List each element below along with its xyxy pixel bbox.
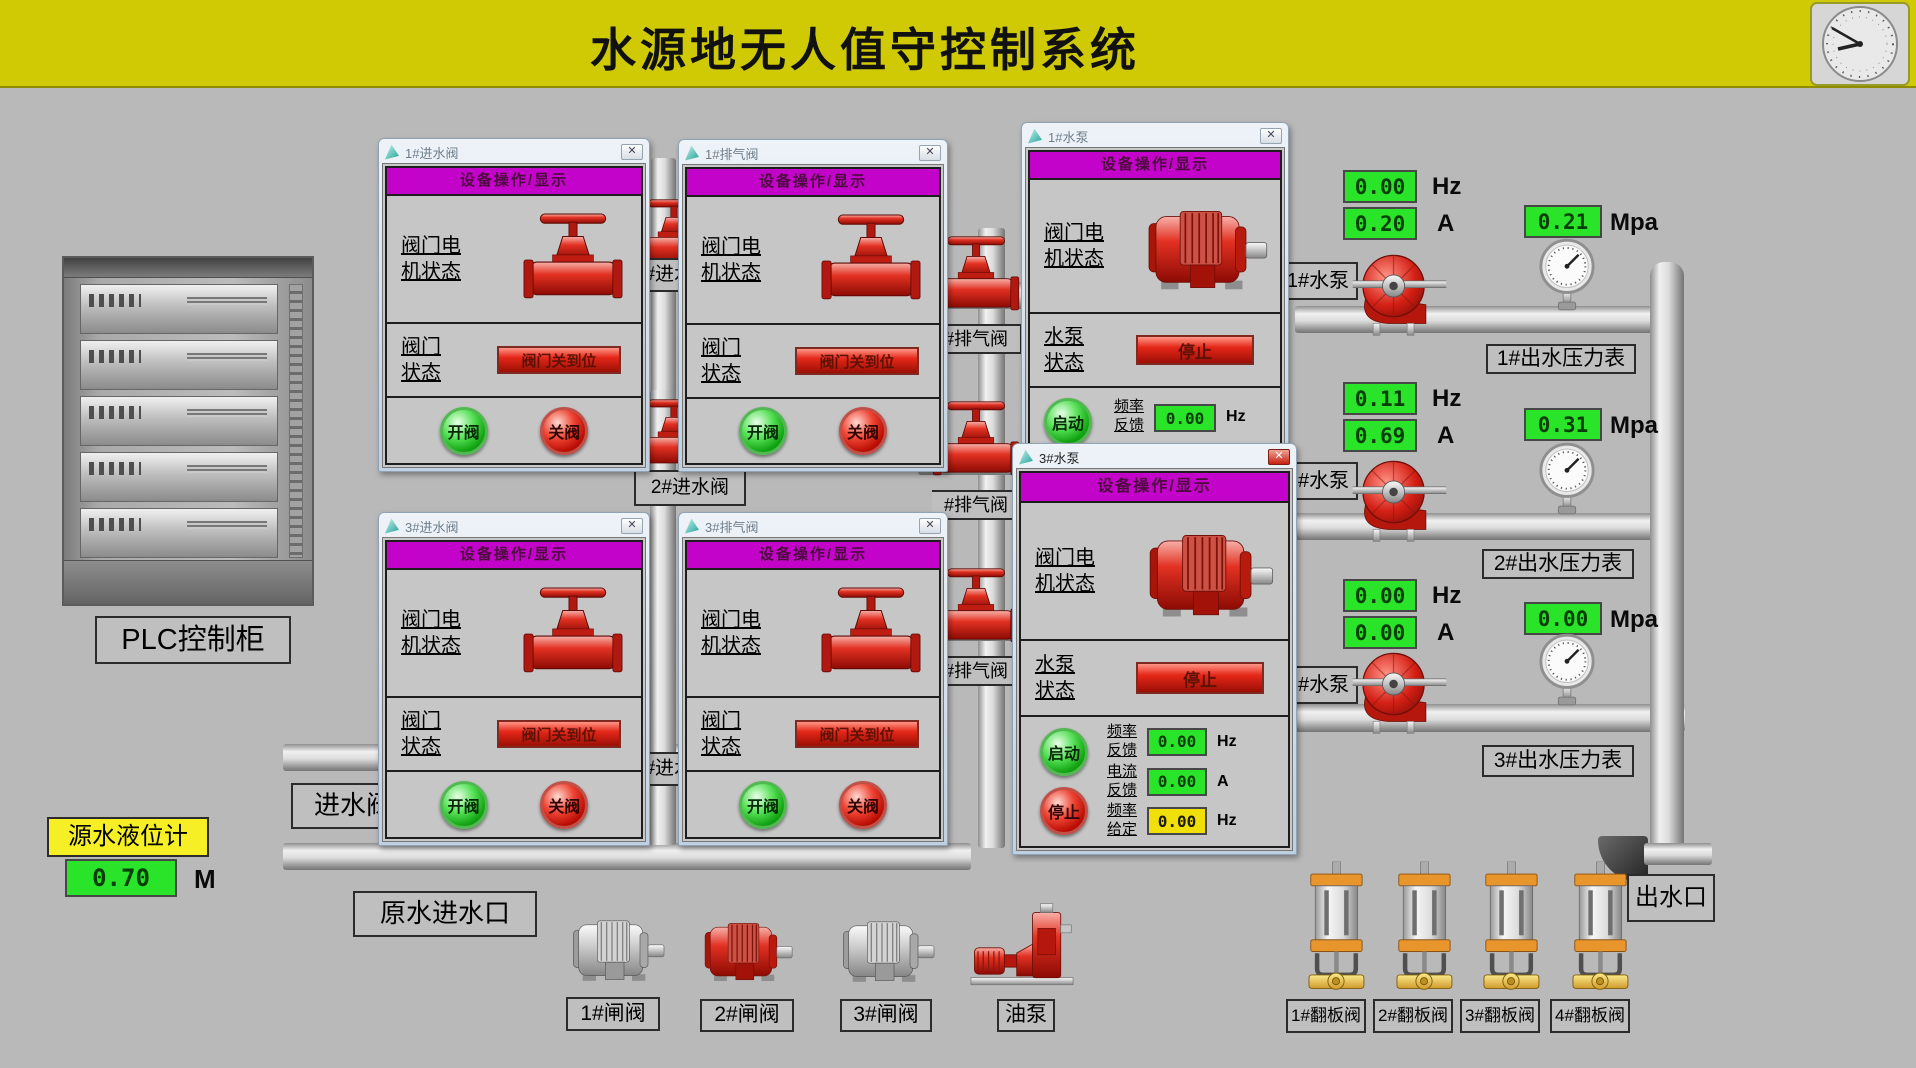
app-sail-icon [685,146,699,161]
device-ops-header: 设备操作/显示 [687,169,939,197]
plc-rack-unit [80,340,278,390]
pump-1-frequency-unit: Hz [1432,173,1461,201]
window-titlebar[interactable]: 3#水泵 ✕ [1016,446,1293,468]
window-title: 3#排气阀 [705,517,913,536]
valve-status-label: 阀门状态 [701,335,741,387]
window-titlebar[interactable]: 3#排气阀 ✕ [682,515,944,537]
pressure-gauge-1-label: 1#出水压力表 [1486,344,1636,374]
pump-2-frequency-unit: Hz [1432,385,1461,413]
pump-control-buttons: 启动 停止 [1021,717,1107,846]
valve-motor-status-label: 阀门电机状态 [701,234,761,286]
window-titlebar[interactable]: 1#进水阀 ✕ [382,141,646,163]
pressure-gauge-2-icon [1538,442,1596,518]
flap-valve-1-icon[interactable] [1300,860,1372,998]
gate-valve-1-label: 1#闸阀 [566,997,660,1031]
close-icon[interactable]: ✕ [919,518,941,534]
app-sail-icon [385,519,399,534]
current-feedback-display: 0.00 [1147,768,1207,796]
frequency-setpoint-display[interactable]: 0.00 [1147,807,1207,835]
window-inlet-valve-1: 1#进水阀 ✕ 设备操作/显示 阀门电机状态 阀门状态 阀门关到位 开阀 关阀 [378,138,650,472]
pressure-gauge-3-label: 3#出水压力表 [1482,745,1634,777]
pump-3-frequency-display: 0.00 [1343,579,1417,612]
pump-1-frequency-display: 0.00 [1343,170,1417,203]
close-icon[interactable]: ✕ [919,145,941,161]
valve-status-label: 阀门状态 [701,708,741,760]
plc-rack-unit [80,452,278,502]
frequency-feedback-label: 频率反馈 [1107,723,1137,761]
device-ops-header: 设备操作/显示 [1021,473,1288,503]
open-valve-button[interactable]: 开阀 [440,781,488,829]
window-exhaust-valve-1: 1#排气阀 ✕ 设备操作/显示 阀门电机状态 阀门状态 阀门关到位 开阀 关阀 [678,139,948,472]
frequency-feedback-display: 0.00 [1147,728,1207,756]
valve-status-label: 阀门状态 [401,334,441,386]
valve-motor-status-label: 阀门电机状态 [1035,545,1095,597]
title-banner: 水源地无人值守控制系统 [0,0,1916,88]
close-valve-button[interactable]: 关阀 [540,781,588,829]
open-valve-button[interactable]: 开阀 [739,407,787,455]
start-pump-button[interactable]: 启动 [1040,728,1088,776]
flap-valve-4-label: 4#翻板阀 [1550,999,1630,1033]
valve-status-value: 阀门关到位 [497,720,621,748]
pump-status-value: 停止 [1136,662,1264,694]
current-feedback-label: 电流反馈 [1107,763,1137,801]
plc-rack-unit [80,508,278,558]
window-exhaust-valve-3: 3#排气阀 ✕ 设备操作/显示 阀门电机状态 阀门状态 阀门关到位 开阀 关阀 [678,512,948,846]
pump-2-frequency-display: 0.11 [1343,382,1417,415]
gate-valve-icon [819,586,923,680]
gate-valve-motor-2-icon[interactable] [700,914,796,984]
pump-2-current-unit: A [1437,422,1454,450]
frequency-feedback-unit: Hz [1217,733,1237,751]
gate-valve-2-label: 2#闸阀 [700,999,794,1032]
window-inlet-valve-3: 3#进水阀 ✕ 设备操作/显示 阀门电机状态 阀门状态 阀门关到位 开阀 关阀 [378,512,650,846]
window-title: 3#水泵 [1039,448,1262,467]
pump-status-label: 水泵状态 [1035,652,1075,704]
pressure-2-display: 0.31 [1524,408,1602,441]
frequency-setpoint-unit: Hz [1217,812,1237,830]
device-ops-header: 设备操作/显示 [387,542,641,570]
window-titlebar[interactable]: 1#水泵 ✕ [1025,125,1285,147]
pressure-1-unit: Mpa [1610,209,1658,237]
pump-3-current-display: 0.00 [1343,616,1417,649]
gate-valve-motor-1-icon[interactable] [568,910,668,985]
outlet-header-pipe [1650,262,1684,852]
close-valve-button[interactable]: 关阀 [540,407,588,455]
flap-valve-1-label: 1#翻板阀 [1286,999,1366,1033]
source-level-unit: M [194,864,216,895]
plc-rack-units [80,284,278,558]
app-sail-icon [1019,450,1033,465]
window-title: 1#水泵 [1048,127,1254,146]
plc-cabinet-top [64,258,312,278]
source-level-label: 源水液位计 [47,817,209,857]
frequency-feedback-display: 0.00 [1154,404,1216,432]
valve-motor-status-label: 阀门电机状态 [401,607,461,659]
app-sail-icon [385,145,399,160]
gate-valve-icon [819,213,923,307]
analog-clock [1810,2,1910,86]
pump-1-current-display: 0.20 [1343,207,1417,240]
pump-2-current-display: 0.69 [1343,419,1417,452]
close-icon[interactable]: ✕ [1268,449,1290,465]
gate-valve-motor-3-icon[interactable] [838,912,938,985]
window-pump-3: 3#水泵 ✕ 设备操作/显示 阀门电机状态 水泵状态 停止 启动 停止 频率反馈 [1012,443,1297,855]
raw-water-inlet-label: 原水进水口 [353,891,537,937]
window-title: 1#排气阀 [705,144,913,163]
plc-cabinet-label: PLC控制柜 [95,616,291,664]
frequency-feedback-label: 频率反馈 [1114,398,1144,436]
pressure-gauge-2-label: 2#出水压力表 [1482,549,1634,579]
gate-valve-icon [521,586,625,680]
flap-valve-4-icon[interactable] [1564,860,1636,998]
pressure-1-display: 0.21 [1524,205,1602,238]
outlet-label: 出水口 [1627,874,1715,922]
valve-motor-status-label: 阀门电机状态 [701,607,761,659]
flap-valve-2-icon[interactable] [1388,860,1460,998]
pressure-3-unit: Mpa [1610,606,1658,634]
window-titlebar[interactable]: 3#进水阀 ✕ [382,515,646,537]
close-valve-button[interactable]: 关阀 [839,781,887,829]
pump-readout-rows: 频率反馈 0.00 Hz 电流反馈 0.00 A 频率给定 0.00 Hz [1107,717,1288,846]
oil-pump-icon[interactable] [968,902,1076,990]
plc-rack-unit [80,284,278,334]
open-valve-button[interactable]: 开阀 [739,781,787,829]
close-icon[interactable]: ✕ [621,518,643,534]
device-ops-header: 设备操作/显示 [1030,152,1280,180]
scada-main-screen: 水源地无人值守控制系统 PLC控制柜 [0,0,1916,1068]
plc-cabinet-graphic[interactable] [62,256,314,606]
oil-pump-label: 油泵 [997,999,1055,1032]
valve-status-value: 阀门关到位 [795,720,919,748]
pump-1-current-unit: A [1437,210,1454,238]
window-titlebar[interactable]: 1#排气阀 ✕ [682,142,944,164]
pressure-gauge-1-icon [1538,238,1596,314]
start-pump-button[interactable]: 启动 [1044,398,1092,446]
pump-status-label: 水泵状态 [1044,324,1084,376]
outlet-stub-pipe [1644,843,1712,865]
app-sail-icon [1028,129,1042,144]
valve-status-value: 阀门关到位 [497,346,621,374]
current-feedback-unit: A [1217,773,1229,791]
source-level-display: 0.70 [65,859,177,897]
valve-status-value: 阀门关到位 [795,347,919,375]
pressure-3-display: 0.00 [1524,602,1602,635]
open-valve-button[interactable]: 开阀 [440,407,488,455]
frequency-setpoint-label: 频率给定 [1107,802,1137,840]
gate-valve-icon [521,212,625,306]
pump-2-icon[interactable] [1352,458,1447,543]
app-sail-icon [685,519,699,534]
window-title: 3#进水阀 [405,517,615,536]
flap-valve-3-icon[interactable] [1475,860,1547,998]
raw-water-main-pipe [283,843,971,870]
pump-motor-icon [1143,524,1278,619]
manifold-pipe [978,228,1005,848]
pump-3-icon[interactable] [1352,650,1447,735]
pump-3-current-unit: A [1437,619,1454,647]
flap-valve-2-label: 2#翻板阀 [1373,999,1453,1033]
inlet-valve-2-tag: 2#进水阀 [634,470,746,506]
pump-status-value: 停止 [1136,335,1254,365]
stop-pump-button[interactable]: 停止 [1040,787,1088,835]
close-icon[interactable]: ✕ [621,144,643,160]
device-ops-header: 设备操作/显示 [387,168,641,196]
pump-motor-icon [1142,201,1272,291]
valve-motor-status-label: 阀门电机状态 [401,233,461,285]
frequency-feedback-unit: Hz [1226,408,1246,426]
close-icon[interactable]: ✕ [1260,128,1282,144]
close-valve-button[interactable]: 关阀 [839,407,887,455]
valve-status-label: 阀门状态 [401,708,441,760]
pressure-2-unit: Mpa [1610,412,1658,440]
valve-motor-status-label: 阀门电机状态 [1044,220,1104,272]
plc-mounting-rail [289,284,303,558]
plc-cabinet-base [64,560,312,604]
system-title: 水源地无人值守控制系统 [0,14,1730,80]
pump-3-frequency-unit: Hz [1432,582,1461,610]
flap-valve-3-label: 3#翻板阀 [1460,999,1540,1033]
gate-valve-3-label: 3#闸阀 [840,999,932,1032]
pump-1-tag: 1#水泵 [1278,262,1358,300]
pressure-gauge-3-icon [1538,633,1596,709]
plc-rack-unit [80,396,278,446]
pump-1-icon[interactable] [1352,252,1447,337]
device-ops-header: 设备操作/显示 [687,542,939,570]
window-title: 1#进水阀 [405,143,615,162]
